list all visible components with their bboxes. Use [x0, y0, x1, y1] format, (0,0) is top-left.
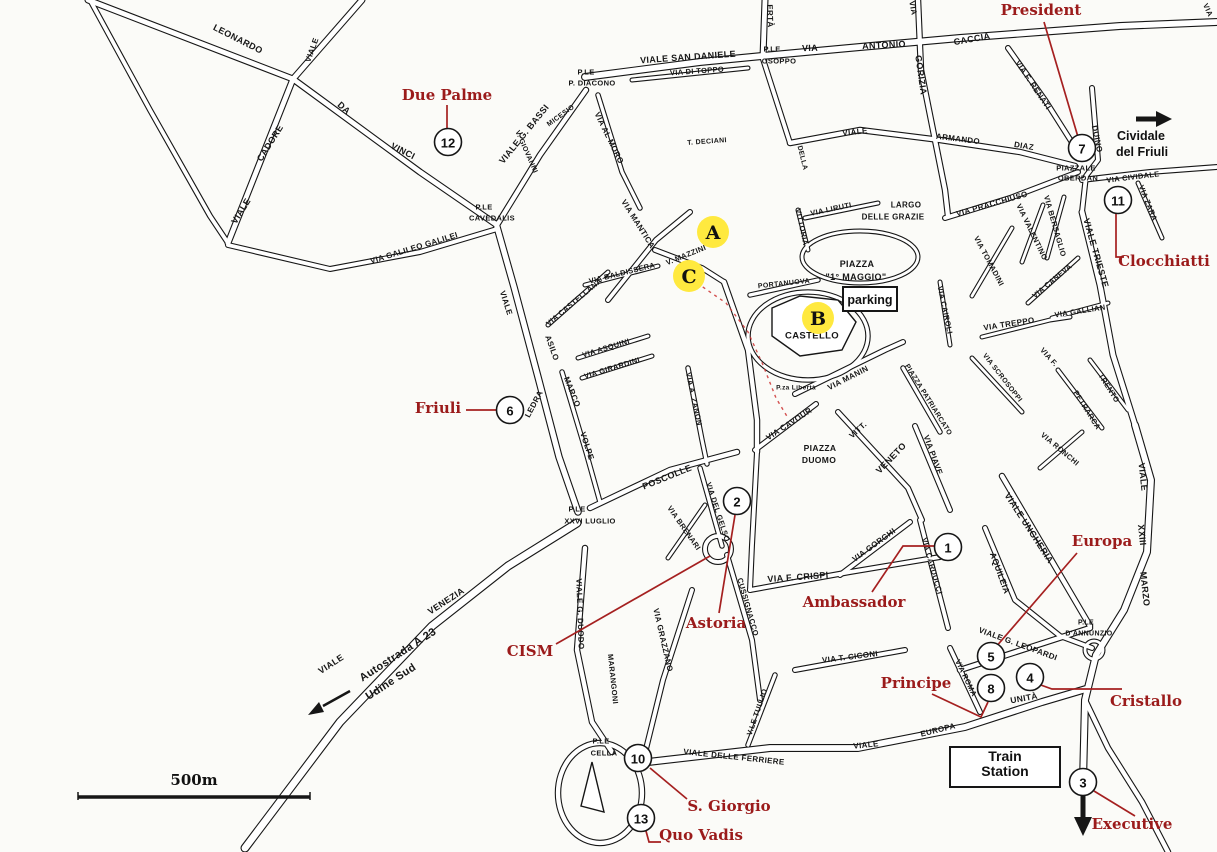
road-fill [724, 282, 757, 452]
train-station-label: Train [988, 748, 1021, 764]
street-label: VIA VALENTINO [1014, 202, 1049, 261]
letter-marker-B: B [802, 302, 834, 334]
number-marker-13: 13 [628, 805, 655, 832]
street-label: VIA F. [1038, 346, 1060, 369]
street-label: VIALE [316, 652, 345, 676]
cella-island [581, 762, 604, 812]
number-marker-5: 5 [978, 643, 1005, 670]
cividale-label: del Friuli [1116, 145, 1168, 159]
street-label: PETRARCA [1071, 389, 1102, 432]
street-label: AQUILEIA [988, 551, 1012, 595]
street-label: GORIZIA [913, 55, 928, 96]
letter-marker-C: C [673, 260, 705, 292]
street-label: VIA [802, 43, 819, 54]
number-marker-12: 12 [435, 129, 462, 156]
number-marker-3: 3 [1070, 769, 1097, 796]
number-marker-label: 8 [987, 682, 994, 697]
train-station-label: Station [981, 763, 1028, 779]
number-marker-6: 6 [497, 397, 524, 424]
city-map: ERTÀVIALE SAN DANIELEP.LEOSOPPOVIA DI TO… [0, 0, 1217, 852]
cividale-sign: Cividaledel Friuli [1116, 129, 1168, 159]
road-casing [245, 523, 577, 848]
street-label: VIA A. ZANON [684, 371, 704, 426]
street-label: VOLPE [578, 431, 596, 462]
street-label: CELLA [591, 749, 618, 758]
street-label: VIA CIVIDALE [1106, 169, 1160, 184]
train-station-sign: TrainStation [950, 747, 1060, 787]
street-label: P.LE [592, 737, 609, 746]
hotel-label: Due Palme [402, 86, 492, 104]
street-label: P.za Libertà [776, 385, 816, 392]
street-label: VIA GALLIAN [1054, 303, 1106, 320]
hotel-label: Clocchiatti [1118, 252, 1210, 270]
hotel-leader-line [650, 768, 687, 799]
street-label: VIALE UNGHERIA [1003, 491, 1056, 565]
street-label: VIA GALILEO GALILEI [369, 230, 459, 265]
street-label: DELLA [796, 145, 809, 171]
hotel-label: Executive [1092, 815, 1173, 833]
street-label: VIA GIRARDINI [583, 355, 641, 381]
number-marker-label: 7 [1078, 142, 1085, 157]
number-marker-label: 3 [1079, 776, 1086, 791]
street-label: VIA BRENARI [665, 504, 702, 552]
road-fill [762, 56, 790, 143]
street-label: OBERDAN [1058, 174, 1098, 183]
street-label: P.LE [763, 45, 780, 54]
hotel-label: Principe [881, 674, 952, 692]
street-label: VITTORIA [794, 208, 811, 247]
street-label: ANTONIO [862, 39, 906, 51]
street-label: MARCO [562, 375, 582, 408]
road-fill [245, 523, 577, 848]
street-label: VIA [1201, 2, 1215, 18]
street-label: VIALE [842, 126, 868, 138]
street-label: P.LE [568, 505, 585, 514]
hotel-label: Quo Vadis [659, 826, 743, 844]
street-label: ASILO [543, 334, 560, 362]
street-label: P.LE [1078, 620, 1094, 627]
street-label: OSOPPO [762, 57, 797, 66]
street-label: VIA GRAZZANO [651, 607, 674, 672]
hotel-label: Ambassador [802, 593, 907, 611]
hotel-label: Europa [1072, 532, 1133, 550]
street-label: VIA GORGHI [851, 526, 898, 563]
autostrada-arrow [308, 691, 350, 715]
number-marker-7: 7 [1069, 135, 1096, 162]
number-marker-label: 1 [944, 541, 951, 556]
street-label: P.LE [475, 203, 492, 212]
letter-marker-label: C [681, 266, 696, 288]
street-label: "1° MAGGIO" [826, 272, 887, 282]
street-labels-layer: ERTÀVIALE SAN DANIELEP.LEOSOPPOVIA DI TO… [212, 0, 1216, 767]
number-marker-label: 13 [634, 812, 648, 827]
letter-marker-label: A [705, 222, 721, 244]
cividale-label: Cividale [1117, 129, 1165, 143]
street-label: P.LE [577, 68, 594, 77]
hotel-label: President [1001, 1, 1082, 19]
street-label: PIAZZALE [1056, 164, 1095, 173]
street-label: LARGO [891, 201, 922, 210]
street-label: P. DIACONO [568, 79, 615, 88]
number-marker-8: 8 [978, 675, 1005, 702]
street-label: PIAZZA [804, 443, 837, 453]
letter-marker-A: A [697, 216, 729, 248]
hotel-label: Cristallo [1110, 692, 1182, 710]
street-label: XXVI LUGLIO [564, 517, 615, 526]
number-marker-label: 2 [733, 495, 740, 510]
autostrada-arrow-shaft [323, 691, 350, 706]
street-label: VIA ZARA [1137, 184, 1160, 223]
street-label: VIA AL MORO [593, 111, 626, 166]
hotel-leader-line [1038, 684, 1122, 689]
road-fill [497, 227, 578, 512]
street-label: T. DECIANI [687, 137, 727, 147]
number-marker-label: 6 [506, 404, 513, 419]
street-label: VIA CASTELLANA [544, 276, 604, 328]
street-label: ERTÀ [765, 4, 775, 27]
street-label: VIALE [229, 196, 252, 225]
street-label: DUOMO [802, 455, 836, 465]
street-label: PIAZZA PATRIARCATO [903, 363, 953, 437]
street-label: VIA CAIROLI [936, 285, 955, 335]
number-marker-label: 5 [987, 650, 994, 665]
map-svg: ERTÀVIALE SAN DANIELEP.LEOSOPPOVIA DI TO… [0, 0, 1217, 852]
scale-label: 500m [170, 771, 217, 789]
letter-marker-label: B [810, 308, 826, 330]
street-label: CAVEDALIS [469, 214, 515, 223]
number-marker-label: 10 [631, 752, 645, 767]
street-label: MARZO [1138, 571, 1152, 607]
street-label: VIALE [1137, 462, 1150, 491]
scale-bar: 500m [78, 771, 310, 800]
executive-arrow [1074, 794, 1092, 836]
street-label: VIA CANEVA [1030, 262, 1073, 300]
number-marker-label: 11 [1111, 194, 1125, 209]
parking-sign: parking [843, 287, 897, 311]
number-marker-1: 1 [935, 534, 962, 561]
roads-fill-layer [88, 0, 1217, 852]
street-label: CACCIA [953, 31, 991, 47]
street-label: PIAZZA [840, 259, 875, 269]
street-label: DELLE GRAZIE [862, 213, 925, 222]
street-label: D'ANNUNZIO [1065, 631, 1112, 638]
street-label: VIALE [853, 739, 879, 751]
autostrada-arrow-head [308, 702, 324, 715]
street-label: MARANGONI [606, 654, 620, 705]
street-label: VIA F. RENATI [1013, 59, 1053, 112]
hotel-label: S. Giorgio [687, 797, 770, 815]
hotel-leader-line [1094, 791, 1135, 816]
hotel-leader-line [1116, 212, 1124, 257]
executive-arrow-head [1074, 817, 1092, 836]
hotel-label: CISM [507, 642, 553, 660]
number-marker-10: 10 [625, 745, 652, 772]
cividale-arrow-head [1156, 111, 1172, 127]
number-marker-label: 4 [1026, 671, 1034, 686]
number-marker-label: 12 [441, 136, 455, 151]
hotel-label: Friuli [415, 399, 462, 417]
number-marker-11: 11 [1105, 187, 1132, 214]
parking-sign-label: parking [847, 293, 892, 307]
street-label: VIA [907, 0, 918, 16]
street-label: VIA ASQUINI [581, 337, 631, 360]
street-label: XXIII [1136, 524, 1148, 546]
route-dashed [697, 283, 788, 418]
street-label: VIA CAVOUR [764, 406, 813, 442]
number-marker-4: 4 [1017, 664, 1044, 691]
cividale-arrow [1136, 111, 1172, 127]
hotel-label: Astoria [685, 614, 747, 632]
road-fill [903, 368, 940, 432]
number-marker-2: 2 [724, 488, 751, 515]
street-label: VIA F. CRISPI [767, 570, 829, 584]
street-label: VIALE [498, 290, 514, 317]
